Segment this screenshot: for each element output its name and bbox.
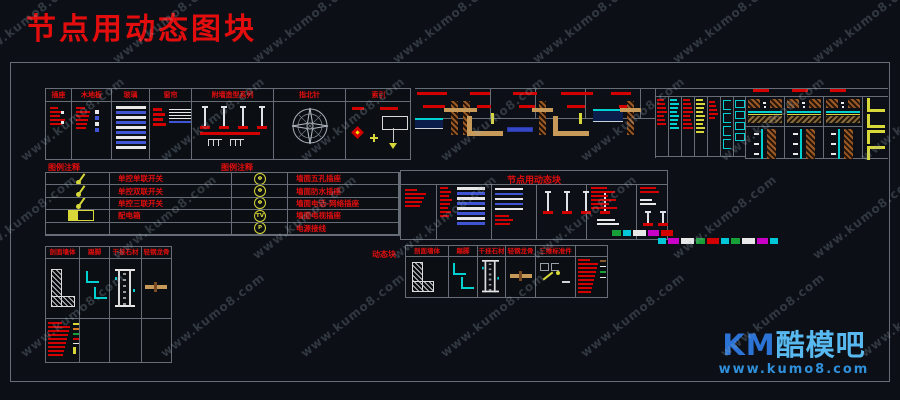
note-mark <box>600 277 606 278</box>
legend-label-cell: 墙面五孔插座 <box>288 173 399 185</box>
legend-label: 单控三联开关 <box>110 198 163 209</box>
blue-label <box>507 127 533 132</box>
cyan-channel-symbol <box>723 126 731 136</box>
color-swatch <box>707 238 719 244</box>
tall-block-symbol <box>647 211 649 223</box>
cad-bar <box>405 189 417 191</box>
wall-section-cell <box>46 259 80 319</box>
cad-bar <box>48 334 68 336</box>
cad-bar <box>591 187 607 189</box>
wall-lamp-icon <box>74 198 88 210</box>
color-swatch <box>696 238 705 244</box>
cad-bar <box>640 191 659 193</box>
color-swatch <box>757 238 768 244</box>
empty-cell <box>110 319 142 363</box>
materials-header: 玻璃 <box>112 89 150 102</box>
cad-stripe <box>457 222 485 225</box>
cad-bar <box>640 187 656 189</box>
cad-stripe <box>116 106 146 109</box>
cad-stripe <box>116 146 146 149</box>
cad-stripe <box>116 141 146 144</box>
cad-bar <box>670 99 677 101</box>
cad-bar <box>591 199 616 201</box>
legend-symbol-cell <box>46 210 110 222</box>
watermark-text: www.kumo8.com <box>530 0 640 66</box>
legend-label-cell <box>110 223 232 235</box>
index-frame-symbol <box>382 116 408 130</box>
color-swatch <box>633 230 646 236</box>
note-mark <box>600 260 606 262</box>
cad-bar <box>640 203 656 205</box>
cad-bar <box>48 330 69 332</box>
drawing-title: 节点用动态图块 <box>26 4 257 48</box>
tall-block-symbol <box>547 191 549 211</box>
north-arrow-compass <box>290 106 330 146</box>
materials-header: 附墙造型系列 <box>192 89 274 102</box>
stone-section-detail <box>482 260 499 292</box>
legend-symbol-cell <box>46 198 110 210</box>
cad-bar <box>50 107 58 109</box>
section-header: 轻钢龙骨 <box>142 247 171 259</box>
cad-bar <box>657 103 665 105</box>
hatched-post <box>627 101 634 135</box>
cad-stripe <box>495 193 523 195</box>
index-pointer <box>389 143 397 149</box>
cad-bar <box>578 267 597 269</box>
color-swatch <box>612 230 621 236</box>
cad-bar <box>76 115 89 117</box>
cad-stripe <box>116 136 146 139</box>
cad-bar <box>657 115 664 117</box>
keel-cell <box>142 259 171 319</box>
legend-label-cell: 单控双联开关 <box>110 185 232 197</box>
bottom-left-sections-table: 剖面墙体 踢脚 干挂石材 轻钢龙骨 <box>45 246 172 363</box>
cad-bar <box>76 107 85 109</box>
legend-symbol-cell: Φ <box>232 198 288 210</box>
section-header: 踢脚 <box>449 246 478 257</box>
cad-bar <box>169 121 192 123</box>
legend-label-cell: 单控单联开关 <box>110 173 232 185</box>
floor-section-detail <box>826 99 860 123</box>
cad-bar <box>683 115 690 117</box>
corner-bracket-symbol <box>867 114 885 128</box>
socket-symbol-icon: Φ <box>254 185 266 197</box>
label-bar <box>380 107 398 110</box>
cyan-profile-symbol <box>94 287 107 299</box>
wood-profile <box>553 116 589 136</box>
cad-bar <box>169 112 192 113</box>
cad-bar <box>578 291 591 293</box>
cad-stripe <box>457 212 485 215</box>
cyan-profile-symbol <box>461 277 474 289</box>
hatched-wall-L <box>51 269 75 307</box>
watermark-text: www.kumo8.com <box>810 0 900 66</box>
cad-bar <box>591 195 608 197</box>
wall-lamp-icon <box>74 185 88 197</box>
cad-bar <box>578 275 595 277</box>
glass-blocks-cell <box>112 102 150 160</box>
corner-bracket-symbol <box>867 146 885 160</box>
cad-bar <box>153 113 165 116</box>
cad-bar <box>670 123 677 125</box>
section-header: 剖面墙体 <box>46 247 80 259</box>
part-symbol <box>551 263 559 271</box>
legend-label-cell: 单控三联开关 <box>110 198 232 210</box>
legend-label-cell: 配电箱 <box>110 210 232 222</box>
skirting-cell <box>449 257 478 297</box>
cad-bar <box>405 201 422 203</box>
cad-bar <box>640 199 652 201</box>
empty-cell <box>142 319 171 363</box>
socket-blocks-cell <box>46 102 72 160</box>
block-mark <box>95 110 99 114</box>
keel-bracket-symbol <box>510 274 532 278</box>
cyan-channel-symbol <box>723 100 731 110</box>
legend-label: 单控单联开关 <box>110 173 163 184</box>
cyan-profile-symbol <box>453 263 466 275</box>
cad-bar <box>495 219 513 221</box>
tall-block-symbol <box>223 106 225 126</box>
note-mark <box>73 328 80 330</box>
legend-symbol-cell <box>46 173 110 185</box>
materials-table: 插座 木地板 玻璃 窗帘 附墙造型系列 指北针 索引 <box>45 88 411 160</box>
keel-cell <box>506 257 536 297</box>
cad-bar <box>76 111 90 113</box>
index-symbols-cell <box>346 102 411 160</box>
cad-bar <box>683 111 693 113</box>
brand-name: KM酷模吧 <box>698 330 890 360</box>
socket-symbol-icon: Φ <box>254 198 266 210</box>
cad-bar <box>683 119 691 121</box>
tall-block-symbol <box>585 191 587 211</box>
legend-symbol-cell: TV <box>232 210 288 222</box>
cad-bar <box>578 271 596 273</box>
floor-section-detail <box>748 99 782 123</box>
legend-symbol-cell: P <box>232 223 288 235</box>
cad-bar <box>76 123 87 125</box>
cad-bar <box>405 197 424 199</box>
cad-stripe <box>457 197 485 200</box>
color-swatch <box>623 230 631 236</box>
cad-bar <box>670 127 679 129</box>
notes-cell <box>576 257 607 297</box>
cad-stripe <box>495 188 523 190</box>
distribution-box-icon <box>68 210 94 221</box>
tall-block-symbol <box>662 211 664 223</box>
section-header: 剖面墙体 <box>406 246 449 257</box>
dynamic-block-side-label: 动态块 <box>372 249 396 260</box>
corner-bracket-symbol <box>867 98 885 112</box>
brand-url: www.kumo8.com <box>698 362 890 377</box>
cad-stripe <box>457 202 485 205</box>
cad-stripe <box>457 187 485 190</box>
bottom-mid-sections-table: 剖面墙体 踢脚 干挂石材 轻钢龙骨 三维标准件 <box>405 245 608 298</box>
cad-bar <box>670 119 678 121</box>
cad-bar <box>405 205 420 207</box>
color-swatch <box>731 238 740 244</box>
cad-bar <box>657 111 667 113</box>
cad-bar <box>670 107 678 109</box>
watermark-text: www.kumo8.com <box>390 0 500 66</box>
ground-symbol <box>208 139 222 146</box>
legend-label: 墙面防水插座 <box>288 186 341 197</box>
color-swatch <box>681 238 694 244</box>
cad-bar <box>405 193 426 195</box>
section-header: 三维标准件 <box>536 246 576 257</box>
cad-bar <box>591 207 617 209</box>
legend-caption-left: 图例注释 <box>48 162 80 173</box>
cad-bar <box>657 123 666 125</box>
block-mark <box>95 122 99 126</box>
cad-bar <box>597 223 619 225</box>
legend-caption-right: 图例注释 <box>221 162 253 173</box>
keel-bracket-symbol <box>145 285 167 289</box>
cad-bar <box>683 99 690 101</box>
note-mark <box>73 323 80 325</box>
cad-bar <box>709 101 715 103</box>
cad-bar <box>696 111 703 113</box>
legend-label-cell: 墙面防水插座 <box>288 185 399 197</box>
legend-label: 墙面电话-网络插座 <box>288 198 359 209</box>
legend-symbol-cell <box>46 223 110 235</box>
cad-bar <box>48 322 62 324</box>
cad-bar <box>440 199 452 201</box>
socket-symbol-icon: TV <box>254 210 266 222</box>
cad-bar <box>440 195 449 197</box>
cad-stripe <box>116 116 146 119</box>
cad-bar <box>696 127 705 129</box>
cad-bar <box>50 115 60 117</box>
note-mark <box>73 338 80 340</box>
legend-label: 墙面电视插座 <box>288 210 341 221</box>
cyan-box-symbol <box>735 111 745 119</box>
index-clover-symbol <box>370 134 378 142</box>
socket-symbol-icon: P <box>254 223 266 235</box>
tv-wall-section <box>593 109 623 122</box>
color-swatch-strip <box>612 230 675 236</box>
brand-rest: 酷模吧 <box>776 328 866 362</box>
cad-bar <box>578 259 590 261</box>
cad-bar <box>440 215 449 217</box>
cad-bar <box>578 263 598 265</box>
hatched-wall-L <box>412 262 434 292</box>
cyan-box-symbol <box>735 100 745 108</box>
block-mark <box>95 128 99 132</box>
socket-symbol-icon: Φ <box>254 173 266 185</box>
block-mark <box>95 116 99 120</box>
cad-bar <box>578 287 592 289</box>
cad-bar <box>48 350 64 352</box>
cad-bar <box>440 207 448 209</box>
cad-stripe <box>116 121 146 124</box>
tall-block-symbol <box>242 106 244 126</box>
cyan-box-symbol <box>735 133 745 141</box>
cad-bar <box>169 118 192 119</box>
cad-bar <box>48 346 65 348</box>
cad-bar <box>670 103 679 105</box>
brand-km: KM <box>722 328 775 362</box>
cad-bar <box>696 99 703 101</box>
cad-bar <box>440 191 451 193</box>
cad-bar <box>709 109 717 111</box>
legend-label: 墙面五孔插座 <box>288 173 341 184</box>
cad-bar <box>657 99 664 101</box>
cad-bar <box>696 119 704 121</box>
cad-bar <box>76 119 88 121</box>
cad-bar <box>76 127 86 129</box>
legend-label: 电源接线 <box>288 223 326 234</box>
materials-header: 窗帘 <box>150 89 192 102</box>
cad-stripe <box>116 131 146 134</box>
part-symbol <box>562 281 570 283</box>
stone-section-detail <box>115 269 135 307</box>
cad-stripe <box>457 192 485 195</box>
skirting-cell <box>80 259 110 319</box>
block-dot <box>61 121 64 124</box>
cyan-channel-symbol <box>723 113 731 123</box>
cad-stripe <box>495 203 523 205</box>
cad-bar <box>578 279 594 281</box>
hatched-post <box>451 101 458 135</box>
cad-drawing-canvas: www.kumo8.comwww.kumo8.comwww.kumo8.comw… <box>0 0 900 400</box>
cad-bar <box>48 342 66 344</box>
cad-bar <box>48 354 63 356</box>
cad-bar <box>48 326 70 328</box>
cad-bar <box>169 115 192 116</box>
cad-bar <box>657 107 666 109</box>
cyan-box-symbol <box>735 122 745 130</box>
legend-label-cell: 墙面电视插座 <box>288 210 399 222</box>
ground-symbol <box>230 139 244 146</box>
cad-bar <box>683 127 693 129</box>
label-bar <box>352 107 364 110</box>
cad-bar <box>440 203 450 205</box>
cad-bar <box>495 215 509 217</box>
legend-label: 单控双联开关 <box>110 186 163 197</box>
section-header: 轻钢龙骨 <box>506 246 536 257</box>
cad-stripe <box>495 198 523 200</box>
stone-cell <box>110 259 142 319</box>
wall-lamp-icon <box>74 173 88 185</box>
cad-bar <box>591 203 609 205</box>
floor-section-detail <box>787 99 821 123</box>
cad-bar <box>709 117 715 119</box>
note-mark <box>73 343 80 344</box>
cad-bar <box>440 211 451 213</box>
cad-bar <box>683 123 692 125</box>
cad-bar <box>153 118 163 121</box>
watermark-text: www.kumo8.com <box>250 0 360 66</box>
cad-bar <box>578 283 593 285</box>
legend-symbol-cell <box>46 185 110 197</box>
cad-bar <box>153 123 166 126</box>
hatched-post <box>539 101 546 135</box>
north-arrow-cell <box>274 102 346 160</box>
section-header: 干挂石材 <box>110 247 142 259</box>
section-header: 踢脚 <box>80 247 110 259</box>
notes-cell <box>46 319 80 363</box>
note-mark <box>600 266 606 267</box>
note-mark <box>600 271 606 273</box>
legend-label: 配电箱 <box>110 210 141 221</box>
color-swatch <box>648 230 659 236</box>
curtain-blocks-cell <box>150 102 192 160</box>
cad-bar <box>657 119 665 121</box>
legend-symbol-cell: Φ <box>232 173 288 185</box>
empty-cell <box>80 319 110 363</box>
cad-bar <box>683 107 692 109</box>
color-swatch <box>742 238 755 244</box>
tall-block-symbol <box>566 191 568 211</box>
cad-bar <box>683 103 691 105</box>
cad-stripe <box>495 208 523 210</box>
wood-floor-blocks-cell <box>72 102 112 160</box>
index-stem <box>393 128 394 142</box>
part-symbol <box>543 272 554 281</box>
legend-symbol-cell: Φ <box>232 185 288 197</box>
legend-label-cell: 墙面电话-网络插座 <box>288 198 399 210</box>
watermark-text: www.kumo8.com <box>670 0 780 66</box>
cad-bar <box>440 187 448 189</box>
materials-header: 指北针 <box>274 89 346 102</box>
color-swatch <box>721 238 729 244</box>
color-swatch-strip <box>658 238 780 244</box>
legend-table: 单控单联开关Φ墙面五孔插座单控双联开关Φ墙面防水插座单控三联开关Φ墙面电话-网络… <box>45 172 400 236</box>
wall-section-cell <box>406 257 449 297</box>
cad-bar <box>48 338 67 340</box>
cad-bar <box>153 108 162 111</box>
cad-bar <box>709 113 718 115</box>
cad-bar <box>200 132 260 135</box>
corner-bracket-symbol <box>867 130 885 144</box>
cad-bar <box>670 111 677 113</box>
part-symbol <box>556 271 560 275</box>
note-mark <box>73 333 80 335</box>
cad-bar <box>591 191 615 193</box>
color-swatch <box>668 238 679 244</box>
tall-block-symbol <box>204 106 206 126</box>
materials-header: 木地板 <box>72 89 112 102</box>
yellow-pin <box>579 113 582 124</box>
color-swatch <box>658 238 666 244</box>
yellow-pin <box>491 113 494 124</box>
block-dot <box>61 111 64 114</box>
cad-bar <box>696 123 703 125</box>
cyan-profile-symbol <box>86 271 99 283</box>
wall-feature-blocks-cell <box>192 102 274 160</box>
cad-stripe <box>116 126 146 129</box>
cad-bar <box>696 107 704 109</box>
materials-header: 索引 <box>346 89 411 102</box>
index-diamond-symbol <box>351 126 364 139</box>
wall-section-detail <box>793 129 815 159</box>
note-mark <box>73 347 76 354</box>
cad-bar <box>495 223 510 225</box>
standard-parts-cell <box>536 257 576 297</box>
cad-bar <box>169 109 191 110</box>
color-swatch <box>661 230 673 236</box>
stone-cell <box>478 257 506 297</box>
wood-profile <box>467 116 503 136</box>
cad-bar <box>696 103 705 105</box>
color-swatch <box>770 238 778 244</box>
cad-stripe <box>457 217 485 220</box>
wall-section-detail <box>831 129 853 159</box>
tv-wall-section <box>415 118 443 129</box>
site-logo: KM酷模吧 www.kumo8.com <box>698 330 890 384</box>
legend-label-cell: 电源接线 <box>288 223 399 235</box>
details-strip <box>415 88 888 160</box>
